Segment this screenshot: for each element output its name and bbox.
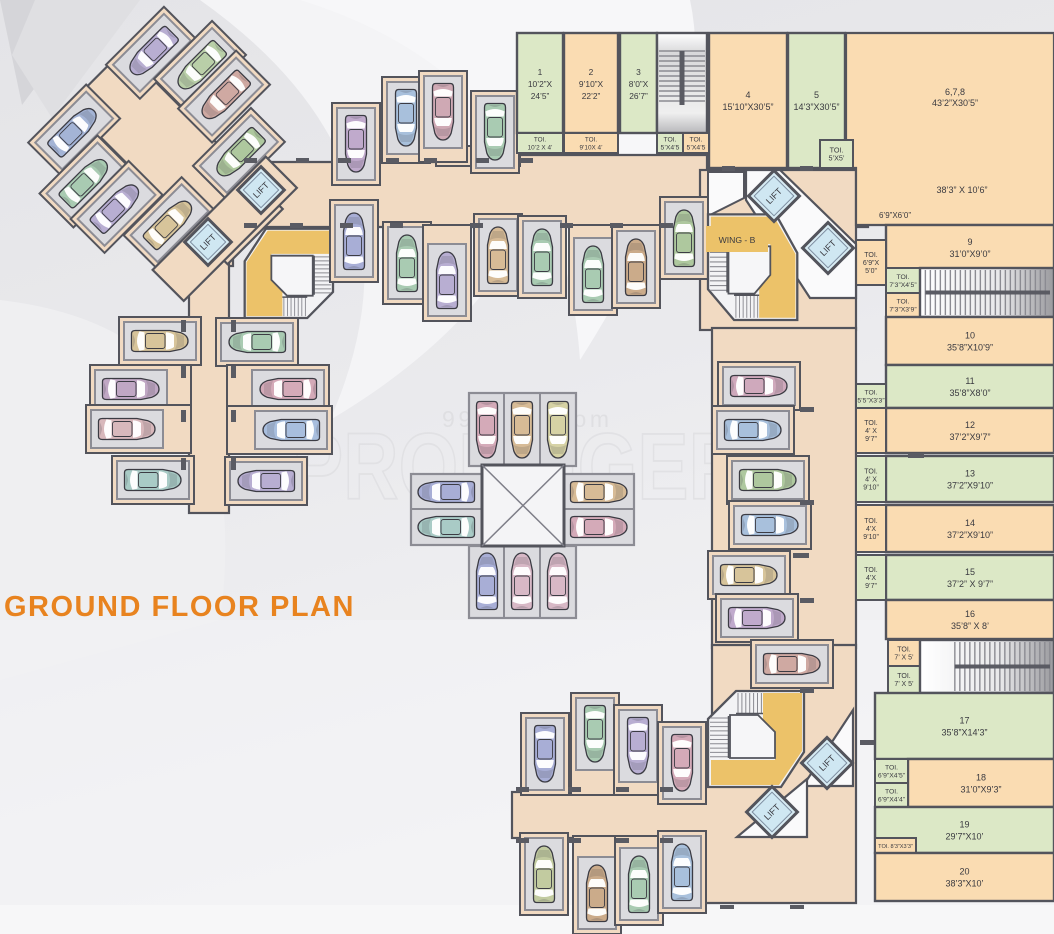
- svg-text:13: 13: [965, 469, 975, 479]
- svg-text:7’ X 5’: 7’ X 5’: [894, 681, 914, 688]
- svg-text:7’3”X4’5”: 7’3”X4’5”: [889, 282, 917, 289]
- svg-text:7’ X 5’: 7’ X 5’: [894, 655, 914, 662]
- svg-text:6’9”X4’4”: 6’9”X4’4”: [878, 797, 906, 804]
- svg-text:5’X4’5: 5’X4’5: [687, 145, 706, 152]
- svg-text:4’X: 4’X: [866, 575, 876, 582]
- svg-text:2: 2: [589, 67, 594, 77]
- svg-text:38’3” X 10’6”: 38’3” X 10’6”: [936, 185, 987, 195]
- svg-text:9’10”: 9’10”: [863, 485, 879, 492]
- svg-text:9: 9: [967, 237, 972, 247]
- svg-text:1: 1: [538, 67, 543, 77]
- svg-text:35’8”X8’0”: 35’8”X8’0”: [949, 388, 990, 398]
- svg-text:38’3”X10’: 38’3”X10’: [945, 879, 983, 889]
- svg-text:TOI.: TOI.: [864, 420, 878, 427]
- svg-text:26’7”: 26’7”: [629, 91, 648, 101]
- svg-text:24’5”: 24’5”: [531, 91, 550, 101]
- svg-text:37’2”X9’10”: 37’2”X9’10”: [947, 481, 993, 491]
- svg-text:31’0”X9’3”: 31’0”X9’3”: [960, 785, 1001, 795]
- svg-text:7’3”X3’9”: 7’3”X3’9”: [889, 307, 917, 314]
- svg-text:31’0”X9’0”: 31’0”X9’0”: [949, 249, 990, 259]
- svg-text:9’10X 4’: 9’10X 4’: [579, 145, 603, 152]
- svg-text:20: 20: [959, 867, 969, 877]
- svg-text:4: 4: [745, 90, 750, 100]
- svg-text:11: 11: [965, 376, 974, 386]
- svg-text:8’0”X: 8’0”X: [629, 79, 649, 89]
- svg-text:TOI.: TOI.: [534, 137, 547, 144]
- svg-text:19: 19: [959, 820, 969, 830]
- svg-text:15’10”X30’5”: 15’10”X30’5”: [722, 102, 773, 112]
- svg-text:35’8”X10’9”: 35’8”X10’9”: [947, 343, 993, 353]
- svg-text:37’2”X9’7”: 37’2”X9’7”: [949, 432, 990, 442]
- svg-text:37’2”X9’10”: 37’2”X9’10”: [947, 530, 993, 540]
- svg-text:5’5”X3’3”: 5’5”X3’3”: [857, 398, 885, 405]
- svg-text:10’2”X: 10’2”X: [528, 79, 553, 89]
- svg-text:14: 14: [965, 518, 975, 528]
- svg-text:43’2”X30’5”: 43’2”X30’5”: [932, 98, 978, 108]
- svg-text:TOI.: TOI.: [864, 252, 878, 259]
- svg-text:29’7”X10’: 29’7”X10’: [945, 832, 983, 842]
- svg-text:35’8”X14’3”: 35’8”X14’3”: [941, 728, 987, 738]
- svg-text:TOI.: TOI.: [864, 469, 878, 476]
- svg-text:6’9”X: 6’9”X: [863, 260, 880, 267]
- svg-text:WING - B: WING - B: [719, 235, 756, 245]
- svg-text:12: 12: [965, 420, 975, 430]
- svg-text:TOI.: TOI.: [897, 647, 911, 654]
- svg-text:15: 15: [965, 567, 975, 577]
- svg-text:22’2”: 22’2”: [582, 91, 601, 101]
- svg-text:5’X4’5: 5’X4’5: [661, 145, 680, 152]
- svg-text:10’2 X 4’: 10’2 X 4’: [528, 145, 553, 152]
- svg-text:TOI.: TOI.: [864, 390, 877, 397]
- svg-text:5: 5: [814, 90, 819, 100]
- svg-text:9’7”: 9’7”: [865, 583, 877, 590]
- svg-text:35’8” X 8’: 35’8” X 8’: [951, 621, 989, 631]
- svg-text:5’X5’: 5’X5’: [829, 154, 845, 163]
- svg-text:4’ X: 4’ X: [865, 428, 877, 435]
- svg-text:TOI.: TOI.: [896, 299, 909, 306]
- svg-text:16: 16: [965, 609, 975, 619]
- svg-text:14’3”X30’5”: 14’3”X30’5”: [793, 102, 839, 112]
- svg-text:TOI.: TOI.: [864, 518, 878, 525]
- svg-text:6’9”X6’0”: 6’9”X6’0”: [879, 211, 911, 220]
- svg-text:TOI.: TOI.: [896, 274, 909, 281]
- svg-text:4’ X: 4’ X: [865, 477, 877, 484]
- svg-text:TOI.: TOI.: [689, 137, 702, 144]
- svg-text:9’10”: 9’10”: [863, 534, 879, 541]
- svg-text:TOI.: TOI.: [885, 765, 898, 772]
- svg-text:TOI.: TOI.: [864, 567, 878, 574]
- svg-text:TOI.: TOI.: [885, 789, 898, 796]
- svg-text:5’0”: 5’0”: [865, 268, 877, 275]
- svg-text:17: 17: [959, 716, 969, 726]
- svg-text:TOI.: TOI.: [663, 137, 676, 144]
- svg-text:4’X: 4’X: [866, 526, 876, 533]
- svg-text:18: 18: [976, 773, 986, 783]
- svg-text:TOI. 8’3”X3’3”: TOI. 8’3”X3’3”: [878, 844, 913, 850]
- svg-text:TOI.: TOI.: [897, 673, 911, 680]
- svg-text:3: 3: [636, 67, 641, 77]
- svg-text:6,7,8: 6,7,8: [945, 87, 965, 97]
- svg-text:9’7”: 9’7”: [865, 436, 877, 443]
- svg-text:37’2” X 9’7”: 37’2” X 9’7”: [947, 579, 993, 589]
- svg-text:6’9”X4’5”: 6’9”X4’5”: [878, 773, 906, 780]
- svg-text:GROUND FLOOR PLAN: GROUND FLOOR PLAN: [4, 591, 355, 623]
- svg-text:9’10”X: 9’10”X: [579, 79, 604, 89]
- svg-text:10: 10: [965, 331, 975, 341]
- svg-text:TOI.: TOI.: [585, 137, 598, 144]
